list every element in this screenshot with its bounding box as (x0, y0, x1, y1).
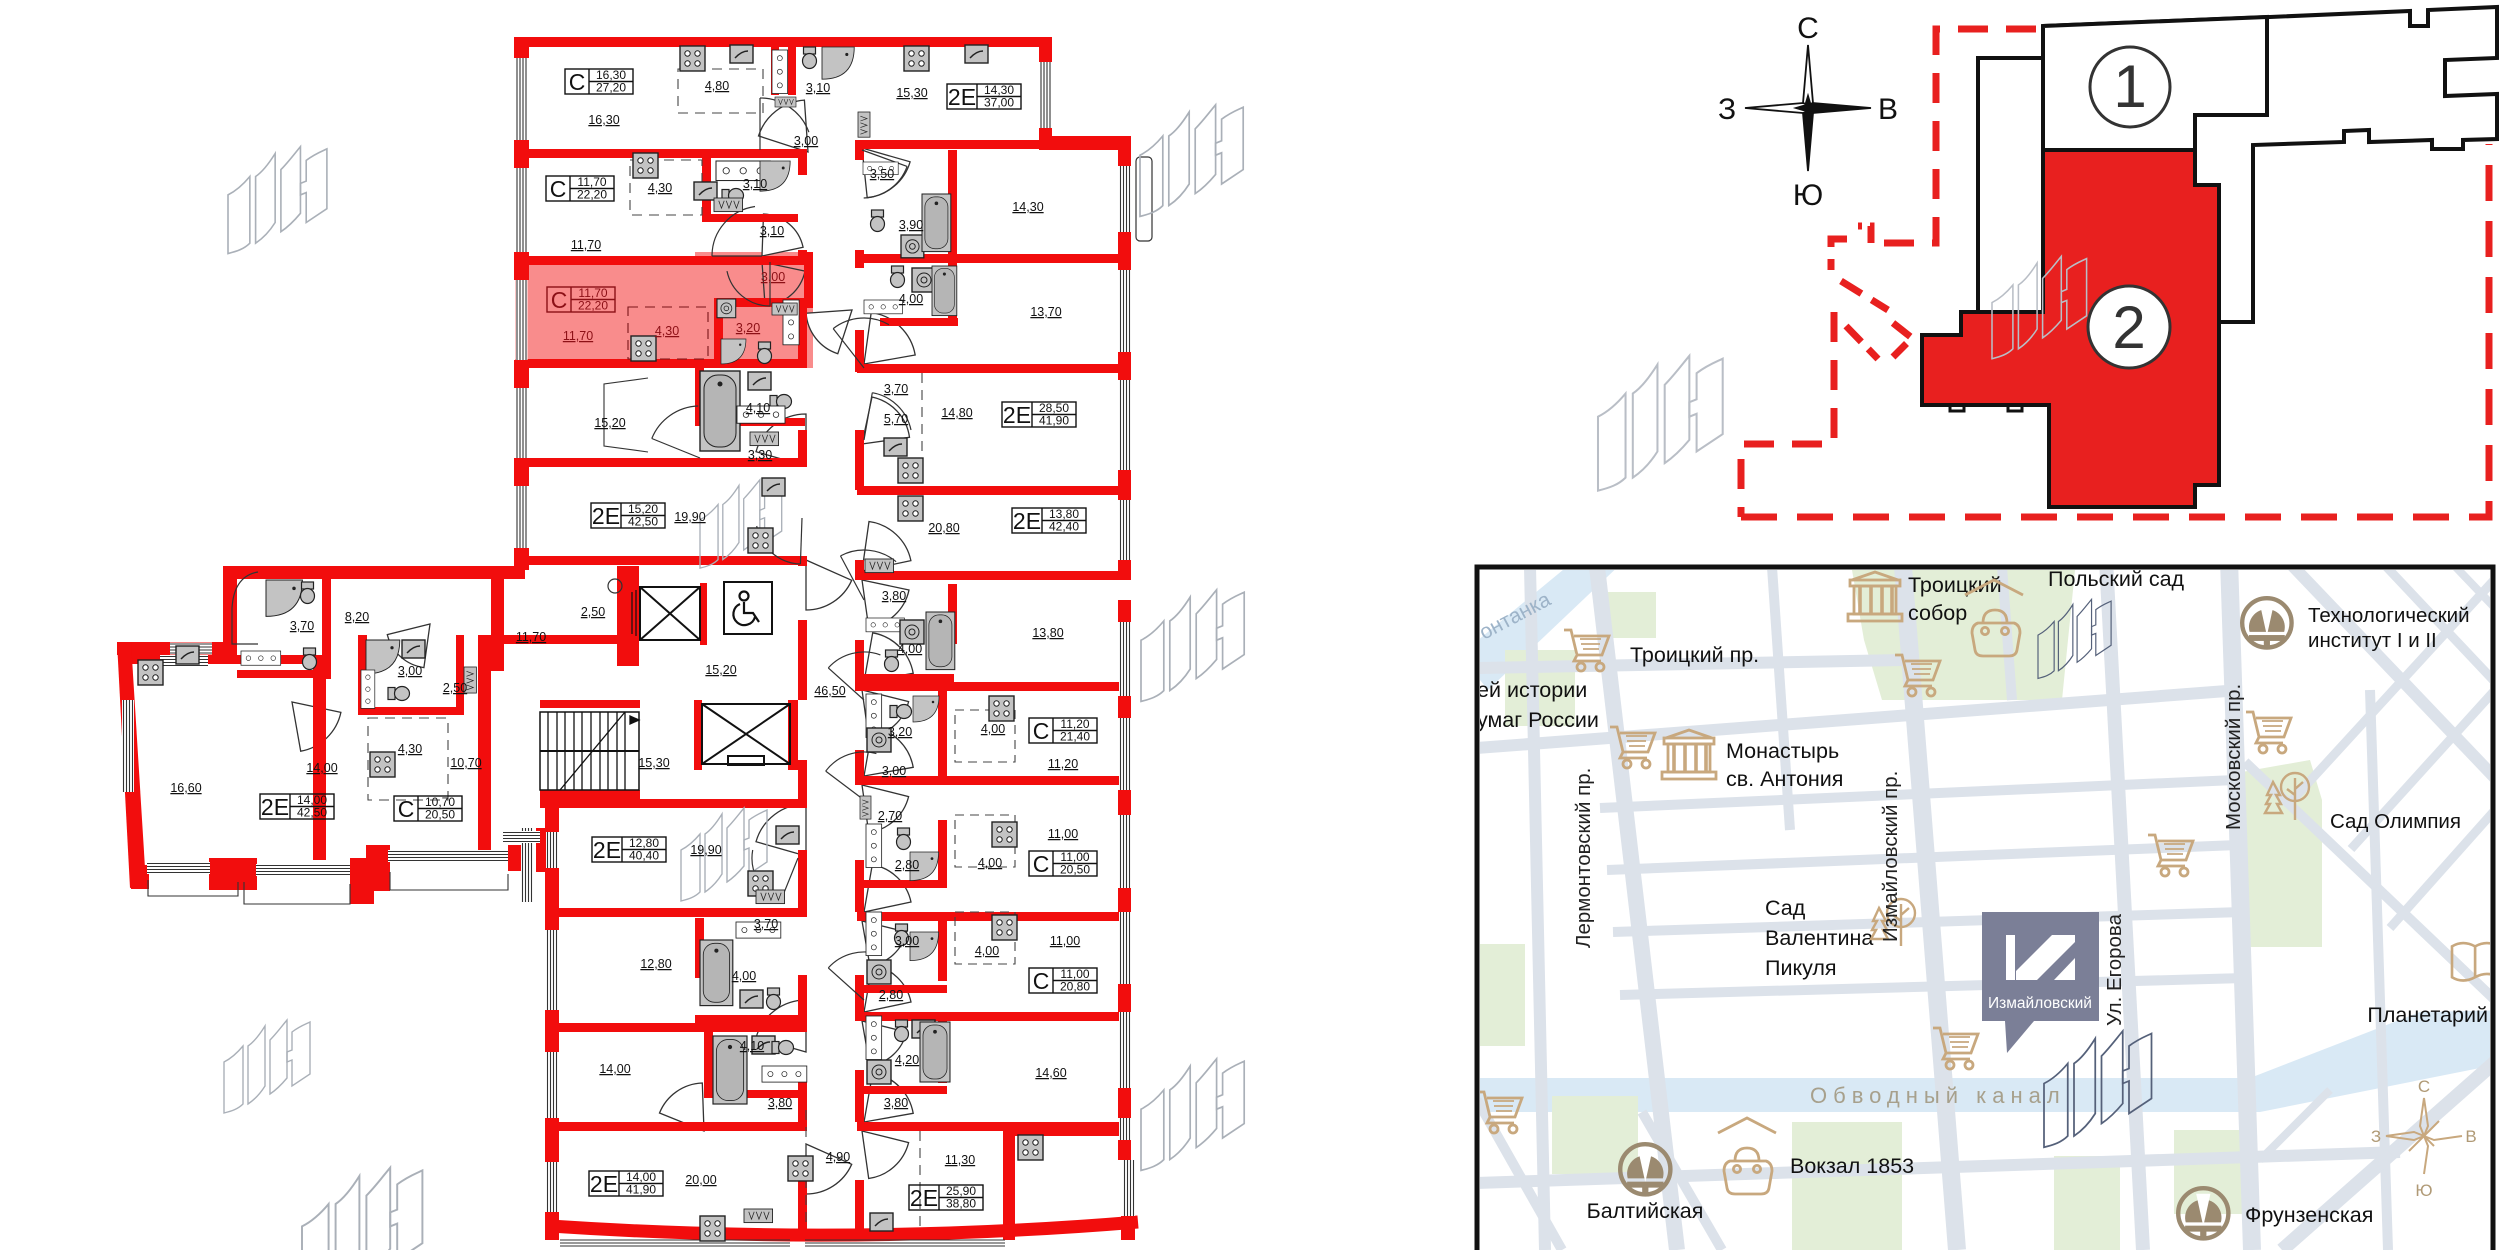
svg-text:22,20: 22,20 (577, 188, 607, 202)
svg-text:4,00: 4,00 (981, 722, 1005, 736)
svg-text:2,80: 2,80 (879, 988, 903, 1002)
svg-text:4,30: 4,30 (398, 742, 422, 756)
svg-text:В: В (2465, 1127, 2476, 1146)
svg-text:20,80: 20,80 (928, 521, 959, 535)
svg-text:2E: 2E (261, 794, 289, 820)
svg-text:ей истории: ей истории (1477, 678, 1587, 702)
svg-text:37,00: 37,00 (984, 96, 1014, 110)
svg-text:15,20: 15,20 (705, 663, 736, 677)
svg-text:42,50: 42,50 (628, 515, 658, 529)
svg-text:Московский пр.: Московский пр. (2222, 684, 2245, 830)
svg-text:3,30: 3,30 (748, 448, 772, 462)
svg-text:2E: 2E (948, 84, 976, 110)
svg-text:3,00: 3,00 (794, 134, 818, 148)
svg-text:4,80: 4,80 (705, 79, 729, 93)
svg-text:14,30: 14,30 (1012, 200, 1043, 214)
svg-text:4,30: 4,30 (655, 324, 679, 338)
svg-text:Пикуля: Пикуля (1765, 956, 1837, 980)
svg-text:2E: 2E (590, 1171, 618, 1197)
svg-text:41,90: 41,90 (626, 1183, 656, 1197)
svg-text:4,00: 4,00 (975, 944, 999, 958)
svg-text:4,90: 4,90 (826, 1150, 850, 1164)
svg-text:З: З (2371, 1127, 2381, 1146)
svg-text:4,10: 4,10 (746, 401, 770, 415)
svg-text:19,90: 19,90 (690, 843, 721, 857)
svg-text:11,00: 11,00 (1048, 827, 1078, 841)
svg-text:11,70: 11,70 (516, 630, 546, 644)
svg-text:4,10: 4,10 (740, 1039, 764, 1053)
svg-text:20,80: 20,80 (1060, 980, 1090, 994)
svg-text:св. Антония: св. Антония (1726, 767, 1843, 791)
svg-text:3,50: 3,50 (870, 167, 894, 181)
svg-text:собор: собор (1908, 601, 1967, 625)
svg-text:3,80: 3,80 (884, 1096, 908, 1110)
svg-text:11,20: 11,20 (1048, 757, 1078, 771)
svg-text:2,80: 2,80 (895, 858, 919, 872)
svg-text:3,20: 3,20 (736, 321, 760, 335)
svg-text:11,70: 11,70 (563, 329, 593, 343)
svg-text:3,00: 3,00 (398, 664, 422, 678)
svg-text:20,50: 20,50 (425, 808, 455, 822)
svg-text:2E: 2E (1013, 508, 1041, 534)
svg-text:41,90: 41,90 (1039, 414, 1069, 428)
svg-text:15,30: 15,30 (638, 756, 669, 770)
svg-text:3,70: 3,70 (290, 619, 314, 633)
svg-text:Фрунзенская: Фрунзенская (2245, 1203, 2373, 1227)
svg-text:20,00: 20,00 (685, 1173, 716, 1187)
svg-text:C: C (1033, 718, 1050, 744)
svg-text:2E: 2E (592, 503, 620, 529)
svg-text:Вокзал 1853: Вокзал 1853 (1790, 1154, 1914, 1178)
svg-text:40,40: 40,40 (629, 849, 659, 863)
svg-text:10,70: 10,70 (450, 756, 481, 770)
svg-text:C: C (1033, 968, 1050, 994)
svg-text:14,00: 14,00 (306, 761, 337, 775)
svg-text:11,30: 11,30 (945, 1153, 975, 1167)
svg-text:4,30: 4,30 (648, 181, 672, 195)
svg-text:Лермонтовский пр.: Лермонтовский пр. (1572, 768, 1595, 948)
svg-text:3,00: 3,00 (882, 764, 906, 778)
svg-text:22,20: 22,20 (578, 299, 608, 313)
svg-text:20,50: 20,50 (1060, 863, 1090, 877)
svg-text:Технологический: Технологический (2308, 604, 2470, 627)
svg-text:3,10: 3,10 (760, 224, 784, 238)
svg-text:Планетарий: Планетарий (2367, 1003, 2488, 1027)
svg-text:2E: 2E (910, 1185, 938, 1211)
svg-text:Обводный канал: Обводный канал (1810, 1083, 2066, 1108)
svg-text:13,80: 13,80 (1032, 626, 1063, 640)
svg-text:42,40: 42,40 (1049, 520, 1079, 534)
svg-text:2: 2 (2112, 294, 2145, 361)
svg-text:C: C (569, 69, 586, 95)
svg-text:C: C (551, 287, 568, 313)
svg-text:C: C (1033, 851, 1050, 877)
svg-text:3,90: 3,90 (899, 218, 923, 232)
svg-text:Ул. Егорова: Ул. Егорова (2103, 913, 2126, 1026)
svg-text:8,20: 8,20 (345, 610, 369, 624)
svg-text:Сад Олимпия: Сад Олимпия (2330, 810, 2461, 833)
svg-text:Сад: Сад (1765, 896, 1806, 920)
svg-text:11,70: 11,70 (571, 238, 601, 252)
svg-text:2E: 2E (1003, 402, 1031, 428)
svg-text:С: С (1797, 12, 1819, 45)
svg-text:2,50: 2,50 (581, 605, 605, 619)
svg-text:4,20: 4,20 (895, 1053, 919, 1067)
svg-text:1: 1 (2113, 53, 2146, 120)
svg-text:Монастырь: Монастырь (1726, 739, 1839, 763)
svg-text:38,80: 38,80 (946, 1197, 976, 1211)
svg-text:Балтийская: Балтийская (1587, 1199, 1704, 1223)
svg-text:12,80: 12,80 (640, 957, 671, 971)
svg-text:З: З (1718, 93, 1736, 126)
svg-text:3,10: 3,10 (743, 177, 767, 191)
svg-text:5,70: 5,70 (884, 412, 908, 426)
svg-text:C: C (398, 796, 415, 822)
svg-text:15,30: 15,30 (896, 86, 927, 100)
svg-text:2,50: 2,50 (443, 681, 467, 695)
svg-text:3,80: 3,80 (768, 1096, 792, 1110)
svg-text:Валентина: Валентина (1765, 926, 1873, 950)
svg-text:Троицкий пр.: Троицкий пр. (1630, 643, 1759, 667)
svg-text:Польский сад: Польский сад (2048, 567, 2185, 591)
svg-text:C: C (550, 176, 567, 202)
svg-text:4,00: 4,00 (899, 292, 923, 306)
svg-text:институт I и II: институт I и II (2308, 629, 2437, 652)
svg-text:Ю: Ю (2415, 1181, 2432, 1200)
svg-text:2,70: 2,70 (878, 809, 902, 823)
svg-text:3,70: 3,70 (754, 917, 778, 931)
svg-text:27,20: 27,20 (596, 81, 626, 95)
svg-text:3,00: 3,00 (761, 270, 785, 284)
svg-text:15,20: 15,20 (594, 416, 625, 430)
svg-text:16,30: 16,30 (588, 113, 619, 127)
svg-text:13,70: 13,70 (1030, 305, 1061, 319)
svg-text:14,60: 14,60 (1035, 1066, 1066, 1080)
svg-text:14,00: 14,00 (599, 1062, 630, 1076)
svg-text:Измайловский: Измайловский (1988, 995, 2092, 1012)
svg-text:Троицкий: Троицкий (1908, 573, 2002, 597)
svg-text:4,00: 4,00 (978, 856, 1002, 870)
svg-text:Измайловский пр.: Измайловский пр. (1879, 771, 1902, 942)
svg-text:11,00: 11,00 (1050, 934, 1080, 948)
svg-text:21,40: 21,40 (1060, 730, 1090, 744)
svg-text:14,80: 14,80 (941, 406, 972, 420)
svg-text:3,00: 3,00 (895, 934, 919, 948)
svg-text:3,70: 3,70 (884, 382, 908, 396)
svg-text:42,50: 42,50 (297, 806, 327, 820)
svg-text:19,90: 19,90 (674, 510, 705, 524)
svg-text:3,20: 3,20 (888, 725, 912, 739)
svg-text:С: С (2418, 1077, 2430, 1096)
svg-text:16,60: 16,60 (170, 781, 201, 795)
svg-text:В: В (1878, 93, 1898, 126)
svg-text:3,80: 3,80 (882, 589, 906, 603)
svg-text:4,00: 4,00 (732, 969, 756, 983)
svg-text:4,00: 4,00 (898, 642, 922, 656)
svg-text:умаг России: умаг России (1477, 708, 1599, 732)
svg-text:2E: 2E (593, 837, 621, 863)
svg-text:3,10: 3,10 (806, 81, 830, 95)
svg-text:46,50: 46,50 (814, 684, 845, 698)
svg-text:Ю: Ю (1793, 179, 1823, 212)
